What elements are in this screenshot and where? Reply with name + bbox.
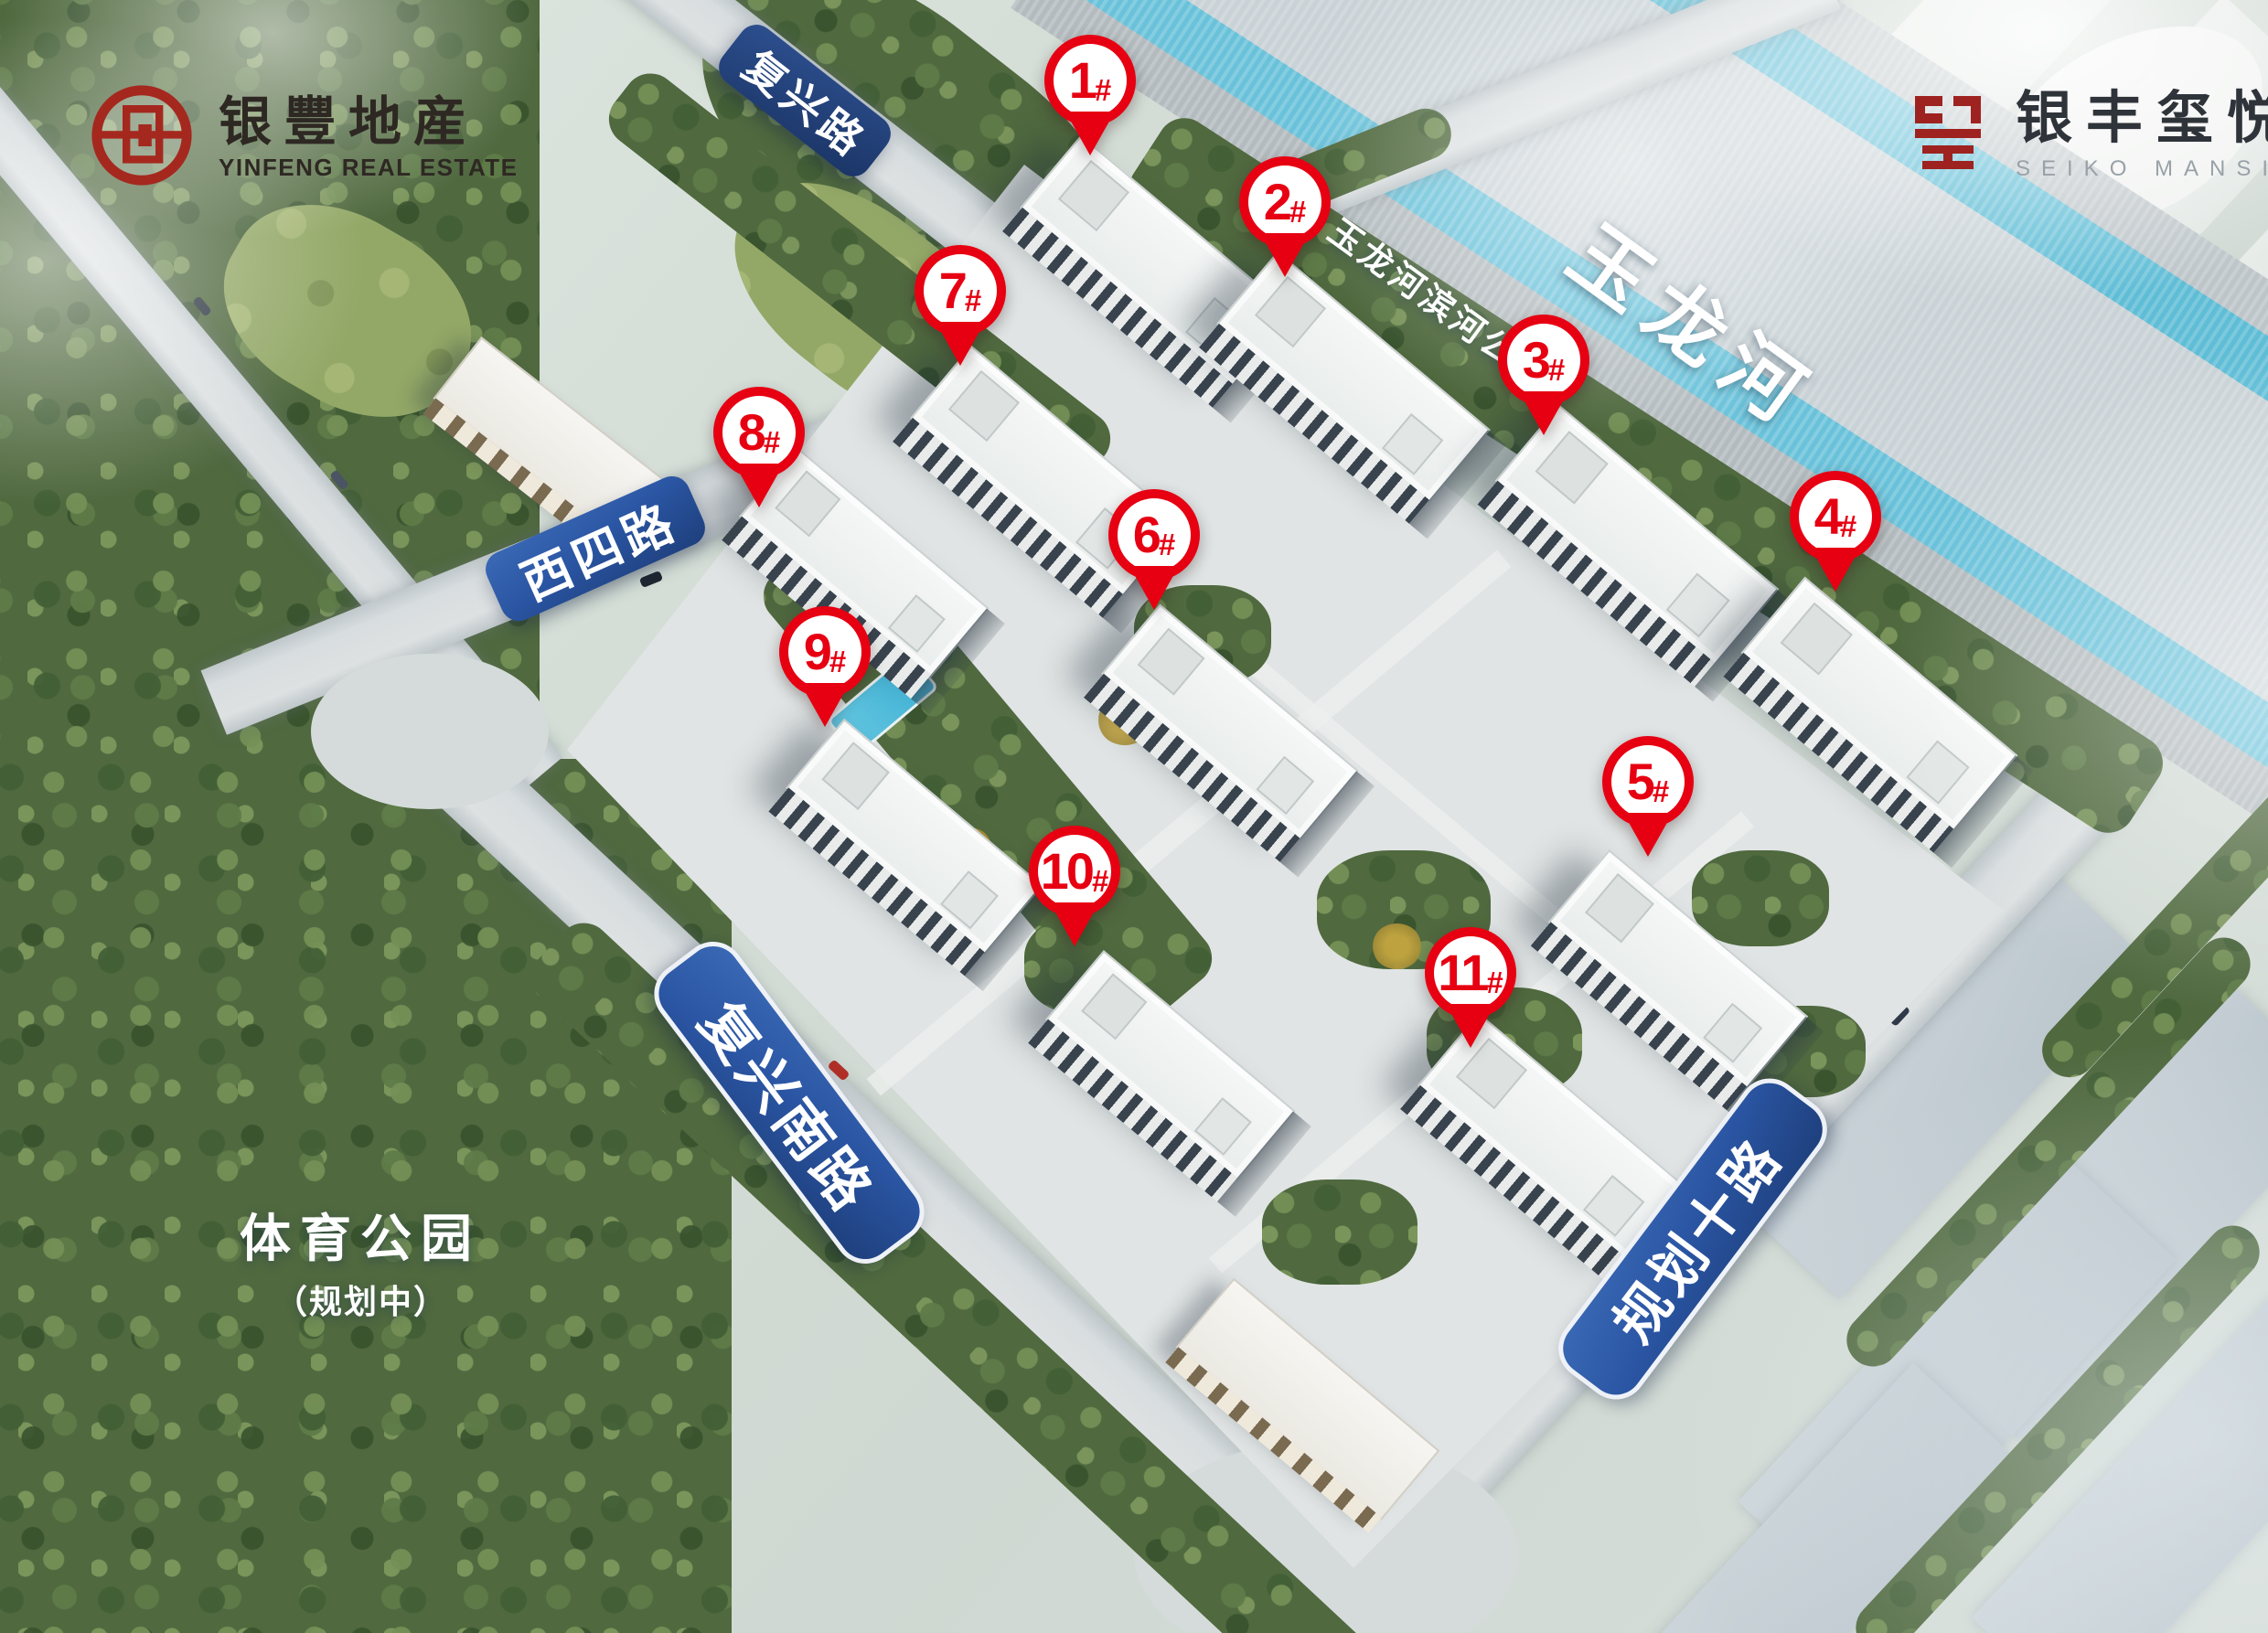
- marker-number: 2: [1264, 176, 1289, 228]
- marker-number: 10: [1041, 846, 1092, 897]
- marker-number: 5: [1627, 756, 1653, 807]
- marker-tail: [1446, 1004, 1495, 1048]
- marker-number: 6: [1133, 509, 1159, 560]
- seiko-mansion-logo-en: SEIKO MANSION: [2016, 156, 2268, 182]
- marker-hash: #: [1289, 197, 1306, 227]
- building-marker-5[interactable]: 5#: [1602, 736, 1694, 857]
- yinfeng-logo: 银豐地産 YINFENG REAL ESTATE: [87, 80, 519, 195]
- marker-tail: [1519, 391, 1568, 435]
- yinfeng-logo-en: YINFENG REAL ESTATE: [219, 154, 519, 182]
- building-marker-8[interactable]: 8#: [713, 387, 805, 507]
- marker-number: 8: [738, 407, 764, 458]
- car: [639, 571, 663, 588]
- marker-tail: [1050, 902, 1099, 946]
- marker-tail: [800, 683, 850, 727]
- seiko-mansion-logo-cn: 银丰玺悦: [2016, 88, 2268, 150]
- building-marker-6[interactable]: 6#: [1108, 489, 1200, 610]
- sports-park-label: 体育公园: [240, 1198, 481, 1272]
- building-marker-2[interactable]: 2#: [1239, 156, 1331, 277]
- building-marker-7[interactable]: 7#: [915, 245, 1006, 366]
- marker-number: 7: [939, 265, 965, 316]
- seiko-mansion-mark-icon: [1902, 87, 1994, 183]
- marker-number: 9: [804, 626, 829, 678]
- marker-hash: #: [1653, 776, 1669, 806]
- autumn-tree: [1372, 923, 1422, 969]
- marker-hash: #: [764, 427, 780, 457]
- building-marker-4[interactable]: 4#: [1790, 471, 1881, 592]
- building-marker-11[interactable]: 11#: [1425, 927, 1516, 1048]
- marker-hash: #: [965, 285, 981, 315]
- marker-number: 4: [1814, 491, 1840, 542]
- marker-hash: #: [1548, 355, 1565, 385]
- marker-hash: #: [1092, 866, 1108, 896]
- marker-hash: #: [829, 646, 846, 677]
- seiko-mansion-logo: 银丰玺悦 SEIKO MANSION: [1902, 87, 2268, 183]
- sports-park-status: （规划中）: [274, 1275, 448, 1323]
- building-marker-1[interactable]: 1#: [1044, 35, 1136, 155]
- building-marker-9[interactable]: 9#: [779, 606, 871, 727]
- marker-tail: [734, 464, 784, 507]
- marker-number: 11: [1438, 947, 1486, 998]
- building-marker-10[interactable]: 10#: [1029, 826, 1120, 946]
- yinfeng-seal-icon: [87, 80, 197, 195]
- marker-tail: [1129, 566, 1179, 610]
- existing-block: [1626, 1363, 2013, 1633]
- marker-tail: [1811, 548, 1860, 592]
- site-plan-rendering: 复兴路 西四路 复兴南路 规划十路 玉龙河 玉龙河滨河公园 体育公园 （规划中）…: [0, 0, 2268, 1633]
- marker-hash: #: [1095, 75, 1111, 105]
- marker-tail: [1623, 813, 1673, 857]
- marker-tail: [1065, 112, 1115, 155]
- marker-tail: [1260, 233, 1310, 277]
- marker-hash: #: [1840, 511, 1856, 541]
- marker-hash: #: [1159, 529, 1175, 560]
- west-intersection: [311, 654, 549, 809]
- marker-tail: [936, 322, 985, 366]
- trees: [1262, 1179, 1417, 1285]
- marker-hash: #: [1486, 967, 1503, 998]
- yinfeng-logo-cn: 银豐地産: [219, 93, 519, 152]
- marker-number: 1: [1069, 55, 1095, 106]
- trees: [1692, 850, 1829, 946]
- building-marker-3[interactable]: 3#: [1498, 315, 1589, 435]
- marker-number: 3: [1523, 335, 1548, 386]
